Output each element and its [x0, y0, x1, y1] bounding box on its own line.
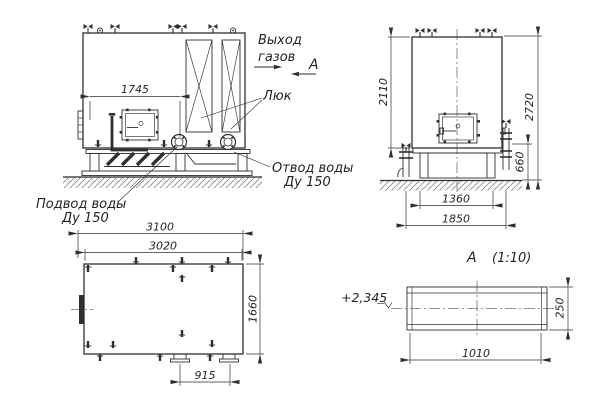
bolt-icon [161, 140, 167, 147]
bolt-icon [95, 140, 101, 147]
valve-icon [502, 119, 511, 128]
side-door [437, 113, 480, 144]
dim-plan-body-length: 3020 [85, 240, 242, 262]
drawing-sheet: 1745 Выход газов А Люк Отвод воды Ду 150… [0, 0, 600, 400]
dim-text: 1360 [442, 193, 470, 206]
water-supply-pipe [112, 116, 148, 150]
dim-plan-nozzle-spacing: 915 [180, 364, 230, 386]
plan-bottom-nozzle [171, 354, 239, 362]
dim-plan-width: 1660 [246, 264, 264, 354]
water-supply-flange-icon [172, 135, 187, 150]
section-title-letter: А [466, 250, 477, 266]
section-view-a: А (1:10) +2,345 250 1010 [341, 250, 573, 364]
bolt-icon [133, 257, 139, 264]
gas-duct-panel-right [222, 40, 240, 132]
label-water-outlet-2: Ду 150 [283, 175, 331, 190]
safety-valve-icon [84, 24, 93, 33]
bolt-icon [97, 354, 103, 361]
left-fitting [78, 111, 83, 139]
bolt-icon [179, 330, 185, 337]
dim-text: 2720 [523, 93, 536, 121]
plan-left-flange [71, 295, 93, 324]
safety-valve-icon [209, 24, 218, 33]
dim-text: 1660 [247, 295, 260, 323]
boiler-body-front [83, 33, 245, 148]
front-door [120, 109, 159, 142]
dim-side-body-height: 2110 [377, 37, 410, 148]
lifting-lug-icon [97, 28, 235, 33]
label-section-mark: А [308, 57, 319, 73]
bolt-icon [206, 140, 212, 147]
label-hatch: Люк [262, 89, 292, 104]
side-base-frame [413, 148, 502, 178]
water-outlet-flange-icon [221, 135, 236, 150]
bolt-icon [85, 341, 91, 348]
safety-valve-icon [476, 28, 485, 37]
bolt-icon [110, 341, 116, 348]
label-water-outlet-1: Отвод воды [272, 161, 353, 176]
drawing-canvas: 1745 Выход газов А Люк Отвод воды Ду 150… [0, 0, 600, 400]
dim-text: 1850 [442, 213, 470, 226]
door-handle-icon [139, 122, 143, 126]
boiler-body-plan [84, 264, 243, 354]
dim-section-height: 250 [549, 287, 573, 330]
ground-hatch-side [380, 181, 522, 191]
bolt-icon [85, 265, 91, 272]
dim-text: 250 [554, 298, 567, 319]
dim-text: 1010 [462, 347, 490, 360]
safety-valve-icon [178, 24, 187, 33]
front-view: 1745 Выход газов А Люк Отвод воды Ду 150… [36, 24, 353, 226]
label-gas-outlet-2: газов [258, 50, 295, 65]
dim-section-width: 1010 [410, 333, 541, 364]
section-title-scale: (1:10) [492, 251, 531, 266]
dim-text: 1745 [121, 83, 149, 96]
label-water-supply-1: Подвод воды [36, 197, 126, 212]
elevation-text: +2,345 [341, 290, 387, 305]
support-frame [82, 150, 252, 176]
dim-text: 2110 [377, 78, 390, 106]
label-gas-outlet-1: Выход [258, 33, 302, 48]
bolt-icon [179, 257, 185, 264]
bolt-icon [207, 354, 213, 361]
dim-text: 660 [514, 152, 527, 173]
dim-text: 3020 [149, 240, 177, 253]
dim-text: 915 [195, 369, 216, 382]
safety-valve-icon [169, 24, 178, 33]
dim-side-frame-width: 1360 [420, 191, 493, 209]
plan-view: 3100 3020 1660 915 [71, 221, 264, 387]
elevation-mark: +2,345 [341, 290, 392, 308]
safety-valve-icon [111, 24, 120, 33]
bolt-icon [170, 265, 176, 272]
gas-duct-panel-left [186, 40, 212, 132]
side-view: 2110 2720 660 1360 1850 [377, 28, 542, 229]
gas-flow-arrow-icon [254, 65, 282, 69]
safety-valve-icon [428, 28, 437, 37]
door-handle-icon [456, 124, 460, 128]
bolt-icon [209, 265, 215, 272]
safety-valve-icon [416, 28, 425, 37]
bolt-icon [225, 257, 231, 264]
dim-text: 3100 [146, 221, 174, 234]
bolt-icon [209, 340, 215, 347]
ground-hatch-front [63, 177, 262, 188]
dim-side-base-height: 660 [512, 144, 532, 180]
bolt-icon [179, 275, 185, 282]
label-water-supply-2: Ду 150 [61, 211, 109, 226]
safety-valve-icon [488, 28, 497, 37]
bolt-icon [157, 354, 163, 361]
